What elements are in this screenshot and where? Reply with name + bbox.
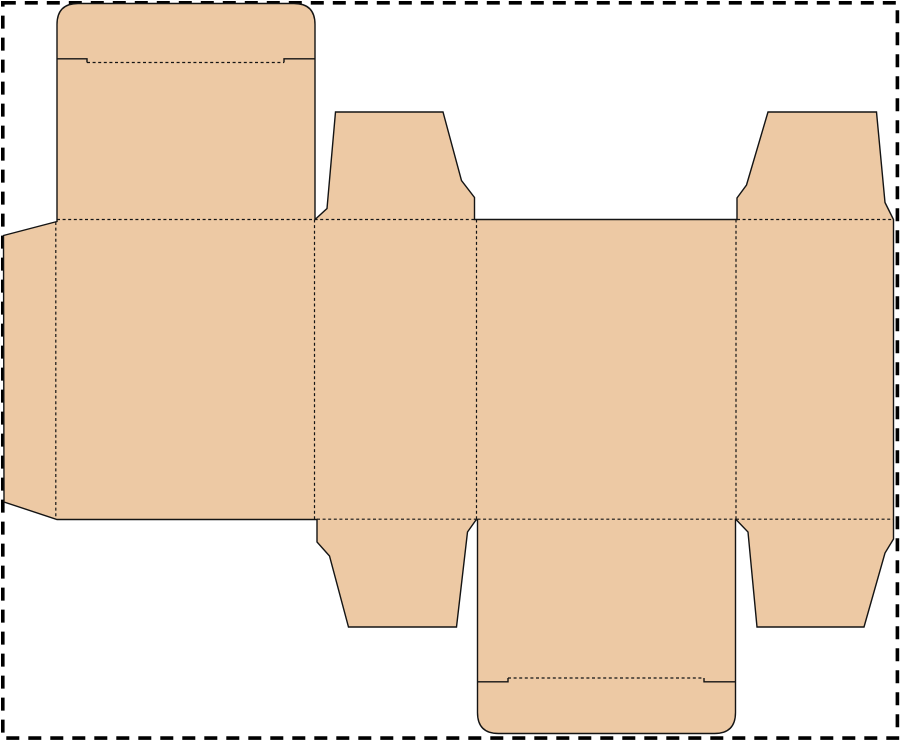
dieline-canvas bbox=[0, 0, 900, 741]
template-page bbox=[0, 0, 900, 741]
dieline-svg bbox=[0, 0, 900, 741]
box-dieline-outline bbox=[4, 4, 894, 734]
